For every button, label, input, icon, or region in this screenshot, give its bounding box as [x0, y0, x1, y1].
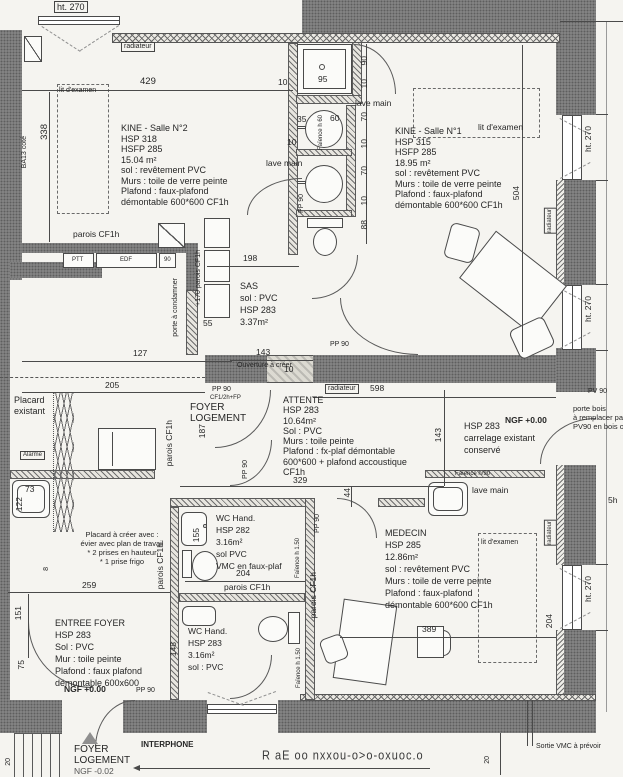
- room-line: 15.04 m²: [121, 155, 229, 166]
- room-line: sol : revêtement PVC: [385, 563, 493, 575]
- partition-label: parois CF1h: [309, 572, 319, 618]
- arrow-head: [133, 765, 140, 771]
- exam-bed-label: lit d'examen: [59, 87, 96, 95]
- room-line: Murs : toile de verre peinte: [121, 176, 229, 187]
- room-line: Plafond : faux plafond: [55, 665, 142, 677]
- side-table-back: [443, 630, 451, 656]
- room-line: Plafond : faux-plafond: [395, 189, 503, 200]
- wall: [564, 630, 596, 700]
- dim: 598: [370, 384, 384, 394]
- partition: [296, 149, 352, 156]
- note-line: Placard: [14, 395, 45, 406]
- tile-note: Faïence h 1.50: [295, 538, 302, 578]
- partition: [179, 593, 305, 602]
- partition: [170, 498, 310, 507]
- room-line: 3.37m²: [240, 316, 278, 328]
- room-line: démontable 600*600 CF1h: [121, 197, 229, 208]
- dim-line: [207, 266, 299, 267]
- door-arc: [95, 700, 135, 748]
- note-line: PV90 en bois ou: [573, 422, 623, 431]
- toilet-cistern: [182, 550, 192, 578]
- note-line: FOYER: [74, 744, 130, 755]
- door-arc: [230, 655, 272, 699]
- door-label: PP 90: [212, 386, 231, 394]
- radiator-label: radiateur: [544, 208, 557, 234]
- tick: [596, 564, 608, 565]
- dim: 95: [318, 75, 327, 85]
- dim: 55: [203, 319, 212, 329]
- note-line: LOGEMENT: [74, 755, 130, 766]
- basin-label: lave main: [472, 486, 508, 496]
- dim: 10: [360, 139, 370, 148]
- room-line: KINE - Salle N°2: [121, 123, 229, 134]
- height-label: ht. 270: [584, 126, 594, 152]
- room-line: Sol : PVC: [55, 641, 142, 653]
- room-line: sol : PVC: [188, 661, 227, 673]
- room-line: sol : PVC: [240, 292, 278, 304]
- room-line: HSP 283: [240, 304, 278, 316]
- foyer-logement-label: FOYER LOGEMENT: [190, 402, 246, 424]
- room-line: 18.95 m²: [395, 158, 503, 169]
- partition: [346, 105, 356, 217]
- partition-label: parois CF1h: [156, 543, 166, 589]
- partition: [10, 470, 155, 479]
- room-line: sol : revêtement PVC: [121, 165, 229, 176]
- basin-label: lave main: [266, 159, 302, 169]
- direction-triangle: [82, 732, 98, 744]
- toilet-cistern: [288, 612, 300, 644]
- room-line: conservé: [464, 444, 535, 456]
- note-line: à remplacer par: [573, 413, 623, 422]
- faucet: [297, 181, 306, 184]
- tick: [596, 630, 608, 631]
- tick: [596, 114, 608, 115]
- note-line: LOGEMENT: [190, 413, 246, 424]
- clipped-label: 5h: [608, 496, 617, 506]
- room-line: démontable 600*600 CF1h: [395, 200, 503, 211]
- dim: 20: [5, 758, 13, 766]
- dim: 10: [284, 365, 293, 375]
- room-line: Plafond : fx-plaf démontable: [283, 446, 407, 456]
- dim: 127: [133, 349, 147, 359]
- level-label: NGF +0.00: [505, 416, 547, 426]
- room-line: SAS: [240, 280, 278, 292]
- room-line: Plafond : faux-plafond: [121, 186, 229, 197]
- door-arc: [247, 178, 302, 215]
- door-label: PP 90: [242, 460, 250, 479]
- dim: 151: [14, 606, 24, 620]
- dim: 44: [343, 488, 353, 497]
- room-line: HSFP 285: [121, 144, 229, 155]
- door-label: PV 90: [588, 388, 607, 396]
- arrow-line: [140, 768, 430, 769]
- dim: 143: [434, 428, 444, 442]
- dim: 198: [243, 254, 257, 264]
- radiator-label: radiateur: [544, 520, 557, 546]
- basin-label: lave main: [355, 99, 391, 109]
- dim: 60: [330, 114, 339, 124]
- room-line: Murs : toile de verre peinte: [385, 575, 493, 587]
- dim: 204: [236, 569, 250, 579]
- dim: 329: [293, 476, 307, 486]
- margin-line: [606, 22, 607, 712]
- room-line: HSP 283: [188, 637, 227, 649]
- insulation-hatch: [556, 465, 564, 565]
- room-line: Murs : toile peinte: [283, 436, 407, 446]
- room-line: WC Hand.: [188, 625, 227, 637]
- bench: [98, 428, 156, 470]
- foyer-logement-label: FOYER LOGEMENT NGF -0.02: [74, 744, 130, 777]
- dim-line: [444, 390, 445, 486]
- dim: 35: [297, 115, 306, 125]
- wc1-label: WC Hand. HSP 282 3.16m² sol PVC VMC en f…: [216, 512, 282, 572]
- rotated-annotation: R aE oo nxxou-o>o-oxuoc.o: [262, 749, 424, 764]
- door-arc: [230, 440, 272, 486]
- door-note: porte à condamner: [172, 278, 180, 337]
- partition-label: parois CF1h: [165, 420, 175, 466]
- level-label: NGF +0.00: [64, 685, 106, 695]
- room-line: 3.16m²: [188, 649, 227, 661]
- dim: 143: [256, 348, 270, 358]
- door-swing-dashed: [41, 26, 80, 52]
- dim: 205: [105, 381, 119, 391]
- kine2-label: KINE - Salle N°2 HSP 318 HSFP 285 15.04 …: [121, 123, 229, 207]
- vmc-note: Sortie VMC à prévoir: [536, 743, 601, 751]
- door-label: PP 90: [298, 194, 306, 213]
- dim: 10: [278, 78, 287, 88]
- exam-bed-label: lit d'examen: [478, 123, 523, 133]
- door-label: CF1/2h+FP: [210, 395, 241, 402]
- partition-note: +170 parois CF1h: [195, 250, 203, 306]
- window: [38, 16, 120, 25]
- wall: [0, 30, 22, 280]
- porte-bois-note: porte bois à remplacer par PV90 en bois …: [573, 404, 623, 431]
- accordion-door: [54, 392, 74, 532]
- dim: 338: [40, 124, 51, 140]
- room-line: HSP 315: [395, 137, 503, 148]
- dim: 122: [15, 497, 25, 511]
- wash-basin-inner: [433, 487, 463, 511]
- placard-existant-label: Placard existant: [14, 395, 45, 417]
- wall: [0, 700, 62, 733]
- dim: 204: [545, 614, 555, 628]
- tick: [596, 180, 608, 181]
- cabinet: [204, 284, 230, 318]
- dim: 88: [360, 220, 370, 229]
- wall: [556, 0, 596, 115]
- wall: [302, 0, 556, 33]
- tick: [596, 350, 608, 351]
- tile-note: Faïence h/90: [455, 471, 490, 478]
- dim-line: [22, 392, 205, 393]
- door-arc: [337, 498, 377, 538]
- note-line: NGF -0.02: [74, 766, 130, 777]
- door-label: PP 90: [314, 514, 322, 533]
- radiator-label: radiateur: [121, 42, 155, 52]
- dotted-line: [53, 392, 54, 532]
- dim-line: [8, 592, 170, 593]
- height-label: ht. 270: [584, 296, 594, 322]
- stairs: [14, 733, 62, 777]
- floor-plan: PTT EDF 90 KINE - Salle N°2 HSP 318 HSFP…: [0, 0, 623, 777]
- wall: [556, 348, 596, 392]
- kine1-label: KINE - Salle N°1 HSP 315 HSFP 285 18.95 …: [395, 126, 503, 210]
- door-label: PP 90: [330, 341, 349, 349]
- faucet: [297, 126, 306, 129]
- wall: [313, 355, 556, 383]
- dim: 259: [82, 581, 96, 591]
- entree-label: ENTREE FOYER HSP 283 Sol : PVC Mur : toi…: [55, 617, 142, 689]
- room-line: MEDECIN: [385, 527, 493, 539]
- duct-box: [158, 223, 185, 248]
- room-line: Plafond : faux-plafond: [385, 587, 493, 599]
- dim: 504: [512, 186, 522, 200]
- exam-bed-label: lit d'examen: [481, 539, 518, 547]
- room-line: carrelage existant: [464, 432, 535, 444]
- room-line: HSP 285: [385, 539, 493, 551]
- room-line: HSP 282: [216, 524, 282, 536]
- dim-line: [522, 45, 523, 352]
- toilet-cistern: [307, 218, 343, 228]
- dim-line: [560, 21, 623, 22]
- compartment-label: PTT: [72, 257, 83, 264]
- wall: [278, 700, 596, 733]
- toilet-bowl: [192, 551, 218, 581]
- compartment-label: 90: [164, 257, 171, 264]
- room-line: Sol : PVC: [283, 426, 407, 436]
- dim: 389: [422, 625, 436, 635]
- wall: [564, 180, 596, 285]
- tile-note: Faïence h 1.50: [296, 648, 303, 688]
- dim: 10: [287, 138, 296, 148]
- room-line: HSFP 285: [395, 147, 503, 158]
- room-line: HSP 318: [121, 134, 229, 145]
- room-line: 12.86m²: [385, 551, 493, 563]
- note-line: FOYER: [190, 402, 246, 413]
- margin-line: [500, 733, 501, 775]
- room-line: sol : revêtement PVC: [395, 168, 503, 179]
- medecin-label: MEDECIN HSP 285 12.86m² sol : revêtement…: [385, 527, 493, 611]
- dim: 10: [360, 79, 370, 88]
- dim-line: [22, 361, 232, 362]
- sas-label: SAS sol : PVC HSP 283 3.37m²: [240, 280, 278, 328]
- faucet: [203, 524, 207, 528]
- partition: [378, 498, 425, 507]
- insulation-hatch: [556, 630, 564, 700]
- note-line: Placard à créer avec :: [68, 530, 176, 539]
- wall: [123, 700, 207, 733]
- dashed-line: [0, 377, 205, 378]
- door-arc: [340, 298, 418, 355]
- dim: 20: [484, 756, 492, 764]
- wall: [0, 280, 10, 700]
- door-label: PP 90: [136, 687, 155, 695]
- compartment-label: EDF: [120, 257, 132, 264]
- room-line: Murs : toile de verre peinte: [395, 179, 503, 190]
- dim: 187: [198, 424, 208, 438]
- room-line: Mur : toile peinte: [55, 653, 142, 665]
- exam-bed-outline: [57, 84, 109, 214]
- dim-line: [230, 360, 313, 361]
- dim: 90: [360, 56, 370, 65]
- note-line: existant: [14, 406, 45, 417]
- wc2-label: WC Hand. HSP 283 3.16m² sol : PVC: [188, 625, 227, 673]
- hatched-wall: [300, 694, 596, 701]
- wash-basin: [305, 165, 343, 203]
- partition-label: parois CF1h: [224, 583, 270, 593]
- bench-line: [112, 432, 113, 466]
- dim: 10: [360, 196, 370, 205]
- tile-note: Faïence h 60: [318, 115, 325, 150]
- room-line: HSP 283: [283, 405, 407, 415]
- vmc-line: [532, 700, 533, 746]
- toilet-bowl: [313, 228, 337, 256]
- room-line: ENTREE FOYER: [55, 617, 142, 629]
- room-line: démontable 600*600 CF1h: [385, 599, 493, 611]
- wall-note: BA13 coté: [21, 136, 29, 168]
- hatched-wall: [112, 33, 560, 43]
- dim-line: [49, 92, 50, 242]
- radiator-label: radiateur: [325, 384, 359, 394]
- attente-label: ATTENTE HSP 283 10.64m² Sol : PVC Murs :…: [283, 395, 407, 477]
- room-line: 600*600 + plafond accoustique: [283, 457, 407, 467]
- dim-line: [28, 594, 29, 658]
- dim-line: [340, 637, 556, 638]
- room-line: ATTENTE: [283, 395, 407, 405]
- partition: [296, 95, 362, 104]
- height-label: ht. 270: [54, 1, 88, 13]
- dim: 429: [140, 77, 156, 88]
- partition-label: parois CF1h: [73, 230, 119, 240]
- tick: [596, 284, 608, 285]
- note-line: porte bois: [573, 404, 623, 413]
- door-arc: [312, 255, 358, 299]
- cabinet: [204, 218, 230, 248]
- insulation-hatch: [556, 180, 564, 285]
- dim: 8: [43, 567, 51, 571]
- alarm-label: Alarme: [20, 451, 45, 460]
- room-line: HSP 283: [55, 629, 142, 641]
- interphone-label: INTERPHONE: [141, 740, 193, 749]
- dim-line: [180, 486, 444, 487]
- sink: [182, 606, 216, 626]
- room-line: 3.16m²: [216, 536, 282, 548]
- height-label: ht. 270: [584, 576, 594, 602]
- dim: 155: [192, 528, 202, 542]
- vmc-line: [527, 700, 528, 746]
- room-line: 10.64m²: [283, 416, 407, 426]
- dim: 148: [169, 642, 179, 656]
- duct-box: [24, 36, 42, 62]
- dim: 70: [360, 166, 370, 175]
- dim: 73: [25, 485, 34, 495]
- dim: 70: [360, 112, 370, 121]
- room-line: WC Hand.: [216, 512, 282, 524]
- toilet-bowl: [258, 616, 288, 642]
- room-line: sol PVC: [216, 548, 282, 560]
- dim: 75: [17, 660, 27, 669]
- shower-drain: [319, 64, 325, 70]
- wall: [564, 465, 596, 565]
